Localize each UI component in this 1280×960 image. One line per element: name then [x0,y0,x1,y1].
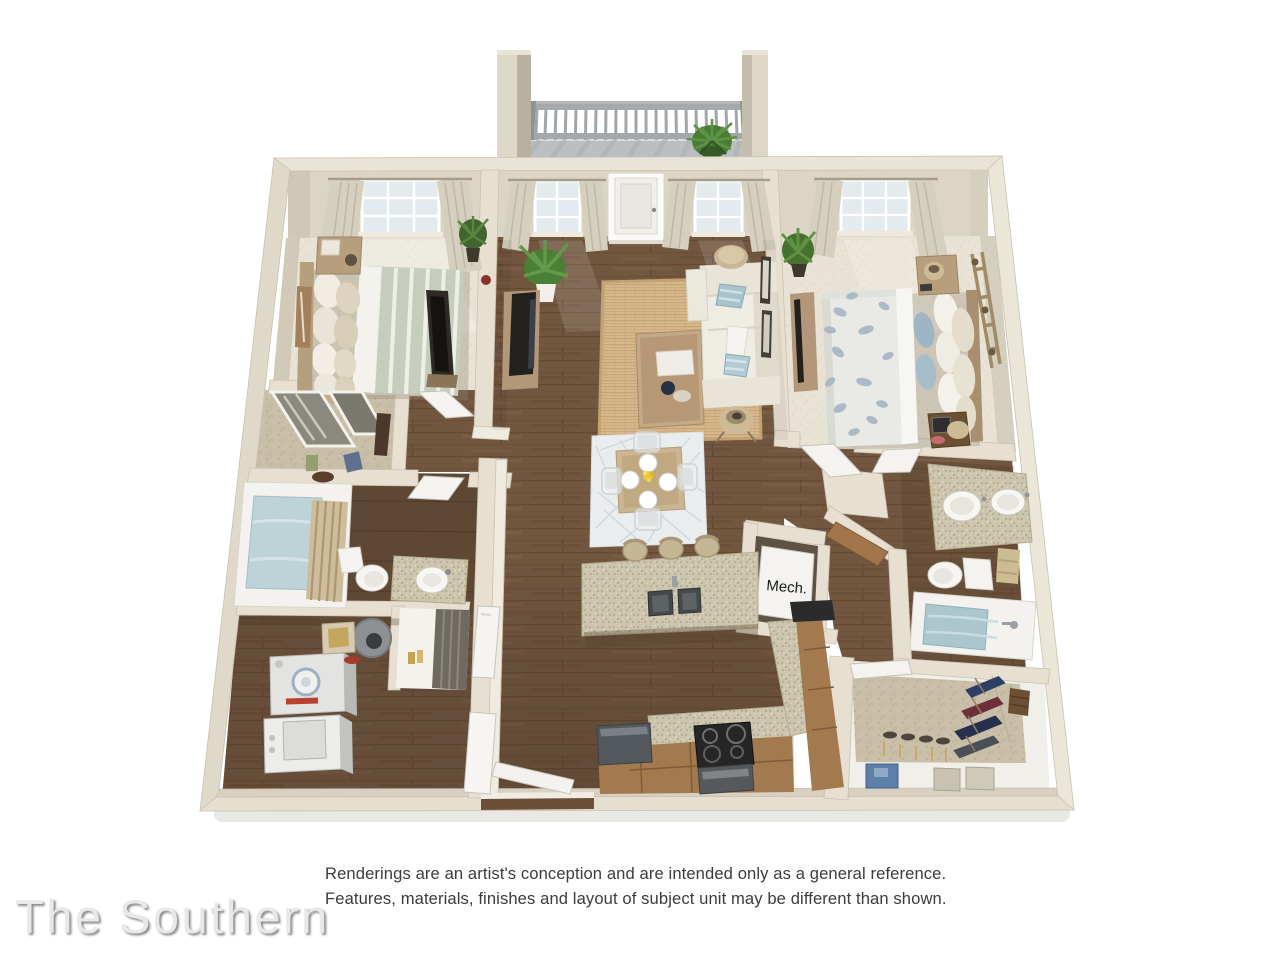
svg-text:Mech.: Mech. [766,577,808,597]
